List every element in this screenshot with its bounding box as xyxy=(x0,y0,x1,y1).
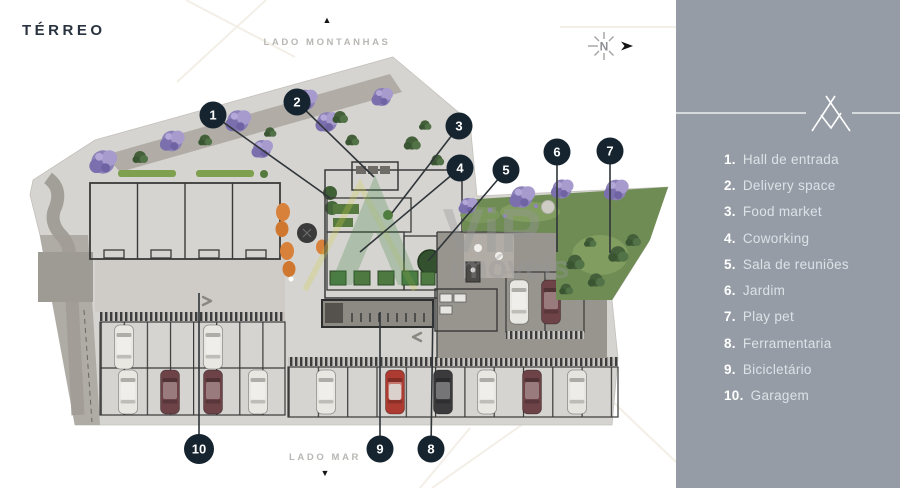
legend-item-label: Food market xyxy=(743,204,822,219)
legend-item-label: Bicicletário xyxy=(743,362,812,377)
legend-item-label: Hall de entrada xyxy=(743,152,839,167)
legend-item: 3.Food market xyxy=(724,199,890,225)
callout-number: 4 xyxy=(456,161,464,176)
car-roof xyxy=(389,384,401,400)
legend-item-number: 6. xyxy=(724,283,736,298)
watermark-brand-sub: imóveis xyxy=(450,249,569,285)
callout-number: 3 xyxy=(455,119,462,134)
car xyxy=(523,370,542,414)
legend-item-number: 10. xyxy=(724,388,744,403)
legend-item-number: 9. xyxy=(724,362,736,377)
legend-item-number: 5. xyxy=(724,257,736,272)
car xyxy=(568,370,587,414)
side-label-sea: LADO MAR xyxy=(215,452,435,463)
legend-item-number: 3. xyxy=(724,204,736,219)
callout-number: 1 xyxy=(209,108,216,123)
legend-item-label: Jardim xyxy=(743,283,785,298)
side-label-mountains: LADO MONTANHAS xyxy=(217,37,437,48)
callout-number: 6 xyxy=(553,145,560,160)
south-arrow-icon: ▼ xyxy=(215,468,435,478)
legend-item-label: Delivery space xyxy=(743,178,836,193)
callout-number: 10 xyxy=(192,442,206,457)
orange-chair xyxy=(276,203,290,221)
page-title: TÉRREO xyxy=(22,22,106,39)
north-arrow-icon: ▲ xyxy=(217,15,437,25)
compass: N xyxy=(588,32,633,60)
brand-logo-divider xyxy=(676,95,900,135)
legend-item: 4.Coworking xyxy=(724,225,890,251)
legend-item: 10.Garagem xyxy=(724,383,890,409)
car xyxy=(510,280,529,324)
mountain-logo-icon xyxy=(812,96,850,131)
car xyxy=(317,370,336,414)
car xyxy=(204,370,223,414)
car xyxy=(115,325,134,369)
legend-panel: 1.Hall de entrada2.Delivery space3.Food … xyxy=(676,0,900,488)
legend-item: 7.Play pet xyxy=(724,304,890,330)
car xyxy=(434,370,453,414)
floor-plan-page: ViP imóveis 12345678910 N TÉRREO ▲ LADO … xyxy=(0,0,900,488)
orange-chair xyxy=(283,261,296,277)
legend-item: 5.Sala de reuniões xyxy=(724,251,890,277)
legend-item-number: 7. xyxy=(724,309,736,324)
car xyxy=(249,370,268,414)
legend-item-label: Sala de reuniões xyxy=(743,257,849,272)
legend-item-number: 4. xyxy=(724,231,736,246)
callout-number: 2 xyxy=(293,95,300,110)
legend-item-label: Garagem xyxy=(751,388,809,403)
legend-item-label: Ferramentaria xyxy=(743,336,832,351)
orange-chair xyxy=(276,221,289,237)
legend-item-label: Coworking xyxy=(743,231,809,246)
car xyxy=(161,370,180,414)
legend-item: 8.Ferramentaria xyxy=(724,330,890,356)
legend-item: 2.Delivery space xyxy=(724,172,890,198)
compass-letter: N xyxy=(600,40,609,54)
car xyxy=(119,370,138,414)
orange-chair xyxy=(280,242,294,260)
callout-number: 7 xyxy=(606,144,613,159)
car xyxy=(478,370,497,414)
legend-item: 6.Jardim xyxy=(724,277,890,303)
callout-number: 5 xyxy=(502,163,509,178)
legend-item: 9.Bicicletário xyxy=(724,356,890,382)
legend-item-number: 1. xyxy=(724,152,736,167)
legend-item-number: 8. xyxy=(724,336,736,351)
legend-item-number: 2. xyxy=(724,178,736,193)
legend-item-label: Play pet xyxy=(743,309,794,324)
compass-east-arrow xyxy=(621,42,633,51)
legend-item: 1.Hall de entrada xyxy=(724,146,890,172)
bike-room xyxy=(322,300,433,327)
legend-list: 1.Hall de entrada2.Delivery space3.Food … xyxy=(724,146,890,409)
car xyxy=(204,325,223,369)
